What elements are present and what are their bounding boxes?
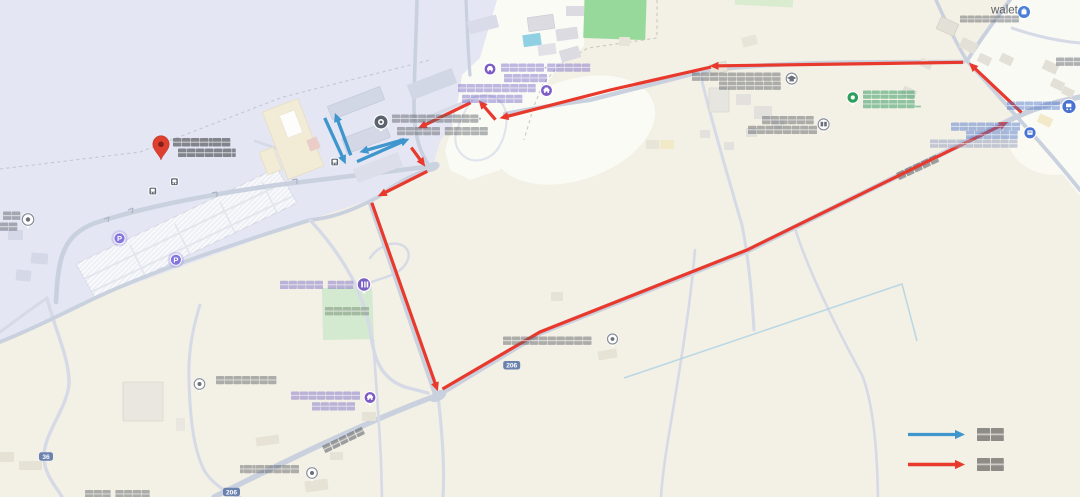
svg-text:206: 206	[506, 363, 517, 370]
svg-text:206: 206	[226, 489, 237, 496]
svg-text:P: P	[173, 256, 178, 265]
svg-text:walet: walet	[990, 5, 1019, 17]
svg-text:P: P	[117, 234, 122, 243]
svg-text:36: 36	[42, 454, 50, 461]
